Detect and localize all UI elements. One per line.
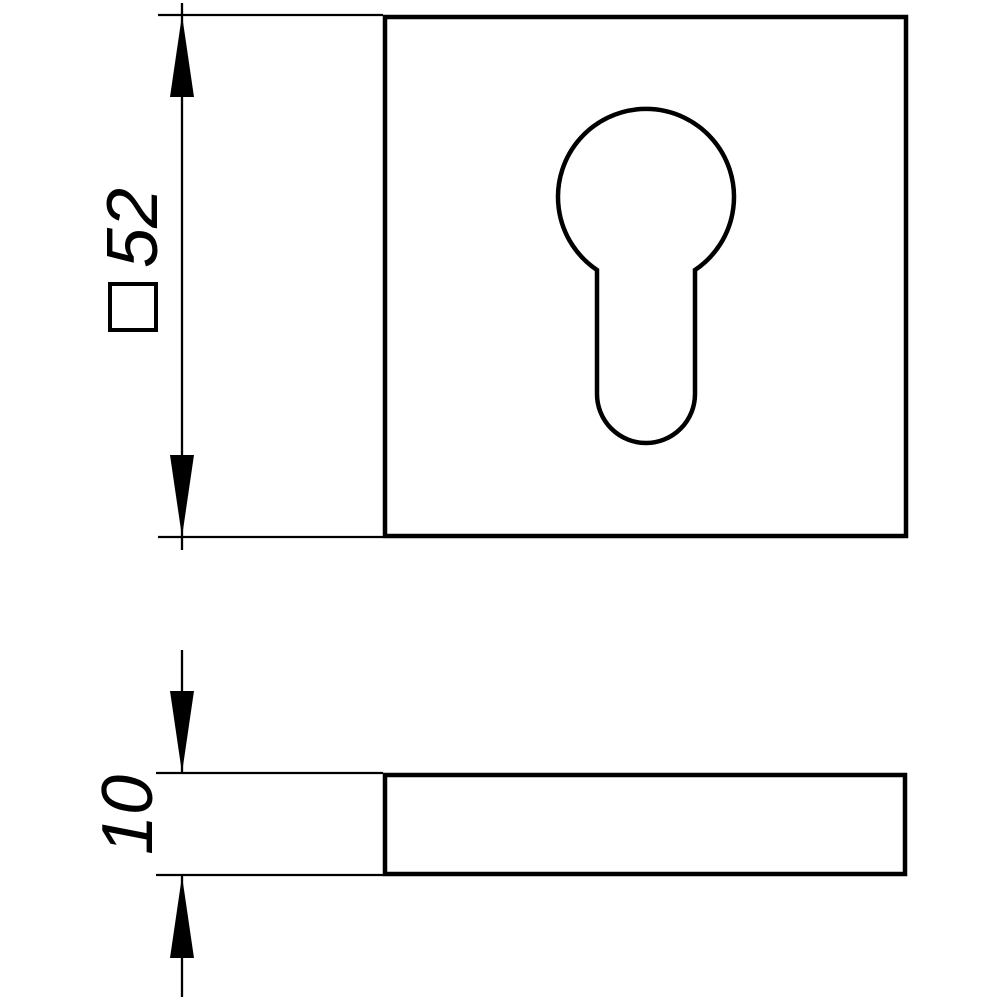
arrowhead-up-icon <box>170 15 194 97</box>
side-view-outline <box>385 775 905 874</box>
dimension-value-10: 10 <box>92 775 164 855</box>
plan-view-outline <box>385 17 906 536</box>
keyhole-cutout <box>558 109 734 443</box>
plan-view <box>385 17 906 536</box>
dimension-52 <box>158 3 383 550</box>
dimension-label-52: 52 <box>97 185 169 335</box>
arrowhead-down-icon <box>170 455 194 537</box>
side-view <box>385 775 905 874</box>
drawing-sheet: 52 10 <box>0 0 1000 1000</box>
square-symbol-icon <box>108 282 158 332</box>
arrowhead-up-icon <box>170 876 194 958</box>
dimension-label-10: 10 <box>92 770 164 860</box>
arrowhead-down-icon <box>170 691 194 773</box>
dimension-10 <box>156 650 383 997</box>
dimension-value-52: 52 <box>97 188 169 268</box>
